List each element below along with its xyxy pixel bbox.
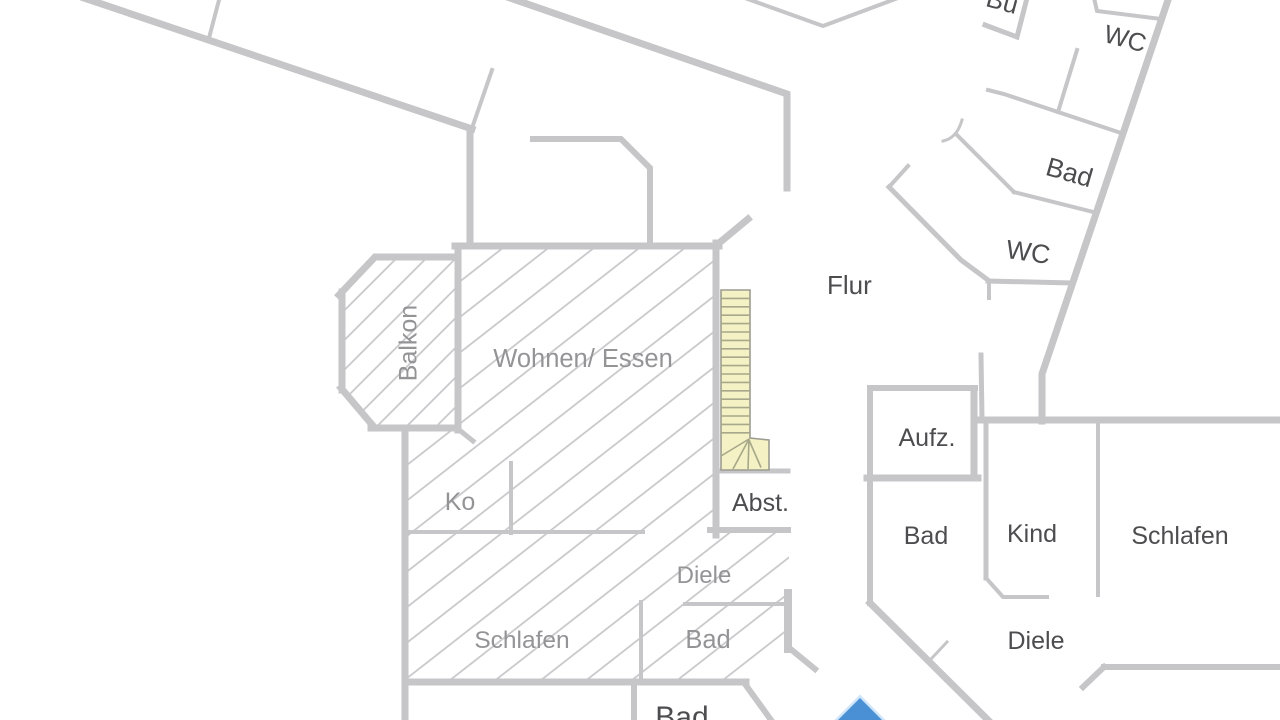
svg-text:Kind: Kind [1007,520,1057,548]
svg-text:Diele: Diele [1008,627,1065,655]
svg-text:Aufz.: Aufz. [899,424,956,452]
svg-text:Ko: Ko [445,488,476,516]
svg-text:Balkon: Balkon [395,305,423,381]
svg-text:Flur: Flur [827,270,872,300]
svg-text:Bad: Bad [904,522,948,550]
svg-text:Abst.: Abst. [732,489,789,517]
svg-text:Schlafen: Schlafen [1131,522,1228,550]
svg-text:Bad: Bad [655,701,708,720]
svg-text:Wohnen/ Essen: Wohnen/ Essen [493,345,673,373]
svg-text:Diele: Diele [677,562,732,589]
svg-text:Schlafen: Schlafen [474,627,569,654]
svg-text:WC: WC [1004,234,1052,270]
svg-text:Bad: Bad [685,626,730,654]
